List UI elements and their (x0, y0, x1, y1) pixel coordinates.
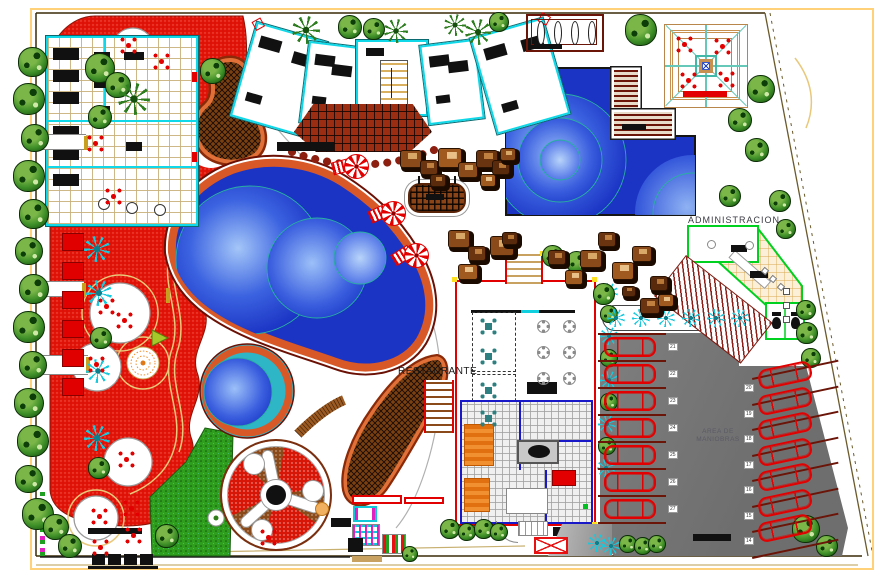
tree-icon (489, 12, 509, 32)
kiosk-bar (404, 497, 444, 504)
bar-flag (454, 176, 456, 184)
pergola-table (676, 36, 693, 53)
cyan-palm-icon (707, 309, 725, 327)
parking-stall-number: 18 (744, 435, 754, 443)
tree-icon (728, 108, 752, 132)
rock-planter (565, 270, 583, 285)
dining-round-table (537, 320, 550, 333)
tree-icon (17, 425, 49, 457)
rock-planter (458, 162, 478, 178)
tree-icon (402, 546, 418, 562)
kiosk-cyan-box (353, 506, 377, 522)
landing-mark (366, 48, 384, 56)
tree-icon (13, 160, 45, 192)
cyan-palm-icon (682, 309, 700, 327)
column-lens (588, 21, 596, 45)
restaurant-west-stairs (424, 380, 454, 433)
patio-table (153, 53, 170, 70)
changing-rooms-building (46, 36, 198, 226)
rock-planter (430, 174, 446, 187)
parking-stall-line (598, 333, 666, 335)
column-lens (571, 21, 579, 45)
toilet-fixture (772, 312, 781, 316)
rock-planter (500, 148, 516, 161)
patio-table (116, 312, 133, 329)
bed-fixture (448, 60, 469, 73)
palm-tree-icon (292, 16, 320, 44)
tree-icon (14, 388, 44, 418)
rock-planter (400, 150, 422, 168)
dining-table (480, 318, 497, 335)
rock-planter (580, 250, 602, 268)
palm-tree-icon (118, 83, 150, 115)
tree-icon (200, 58, 226, 84)
entry-seat (124, 554, 137, 565)
bench-mark (534, 44, 562, 49)
cyan-palm-icon (84, 425, 110, 451)
parked-car (604, 472, 656, 492)
patio-table (123, 500, 140, 517)
bed-fixture (258, 35, 282, 53)
tree-icon (155, 524, 179, 548)
sunbed (62, 320, 84, 338)
palapa-planter (302, 480, 324, 502)
palm-tree-icon (384, 19, 408, 43)
tree-icon (58, 534, 82, 558)
parked-car (604, 337, 656, 357)
pool-umbrella-icon (344, 154, 369, 179)
rock-planter (468, 246, 486, 261)
entry-seat (140, 554, 153, 565)
admin-chair (707, 240, 716, 249)
bed-fixture (483, 43, 507, 61)
admin-cabinet (783, 302, 790, 309)
tree-icon (19, 274, 49, 304)
palm-tree-icon (465, 19, 491, 45)
tree-icon (440, 519, 460, 539)
gate-sign (534, 537, 568, 554)
entrance-steps (518, 521, 548, 536)
rock-planter (492, 160, 510, 175)
parked-car (604, 418, 656, 438)
sunbed (62, 262, 84, 280)
stop-bar (693, 534, 731, 541)
kiosk-bar (352, 495, 402, 504)
toilet-fixture (154, 204, 166, 216)
parking-stall-number: 20 (744, 384, 754, 392)
parking-stall-number: 22 (668, 370, 678, 378)
admin-cabinet (783, 288, 790, 295)
tree-icon (88, 105, 112, 129)
cad-snap-dot (592, 277, 597, 282)
administration-label: ADMINISTRACION (688, 215, 780, 225)
cad-snap-dot (452, 277, 457, 282)
tree-icon (21, 124, 49, 152)
tree-icon (18, 47, 48, 77)
cyan-palm-icon (84, 236, 110, 262)
rock-planter (598, 232, 616, 247)
patio-table (125, 527, 142, 544)
site-plan-canvas: ADMINISTRACION RESTAURANTE (0, 0, 882, 588)
tree-icon (490, 523, 508, 541)
tree-icon (15, 465, 43, 493)
admin-chair (745, 241, 754, 250)
range-top (528, 445, 550, 458)
tree-icon (15, 237, 43, 265)
rock-planter (448, 230, 470, 248)
bed-fixture (53, 92, 79, 104)
kitchen-counter-orange (464, 424, 494, 466)
bath-fixture (312, 96, 327, 106)
tree-icon (625, 14, 657, 46)
tree-icon (338, 15, 362, 39)
rock-planter (632, 246, 652, 262)
pergola-table (714, 38, 731, 55)
parking-stall-number: 14 (744, 537, 754, 545)
sunbed (62, 233, 84, 251)
sand-circle (315, 502, 329, 516)
bar-flag (418, 176, 420, 184)
dining-round-table (563, 372, 576, 385)
kitchen-island (506, 488, 548, 514)
palapa-center-post (266, 485, 286, 505)
parking-stall-line (598, 495, 666, 497)
dining-round-table (563, 346, 576, 359)
kitchen-range (517, 440, 559, 464)
tree-icon (776, 219, 796, 239)
kitchen-counter-orange (464, 478, 490, 512)
patio-table (120, 37, 137, 54)
restaurant-north-stairs (505, 254, 543, 284)
pergola-table (718, 71, 735, 88)
dining-round-table (537, 372, 550, 385)
tree-icon (88, 457, 110, 479)
patio-table (98, 298, 115, 315)
parked-car (604, 391, 656, 411)
patio-table (87, 135, 104, 152)
bed-fixture (429, 54, 450, 67)
pergola-center-planter (695, 55, 717, 77)
pool-umbrella-icon (404, 243, 429, 268)
rock-planter (502, 232, 518, 245)
tree-icon (13, 83, 45, 115)
parking-stall-number: 19 (744, 410, 754, 418)
bed-fixture (53, 48, 79, 60)
parking-stall-number: 21 (668, 343, 678, 351)
bed-fixture (331, 64, 352, 77)
pergola-table (680, 72, 697, 89)
parking-stall-line (598, 387, 666, 389)
terrace-bench (277, 142, 334, 151)
sunbed (62, 291, 84, 309)
stairs-direction-arrow (391, 68, 397, 98)
parking-stall-line (598, 468, 666, 470)
bench-mark (331, 518, 351, 527)
pool-umbrella-icon (381, 201, 406, 226)
deck-bench (622, 124, 646, 130)
rock-planter (622, 286, 636, 297)
entry-seat (108, 554, 121, 565)
rock-planter (480, 174, 496, 187)
bath-fixture (436, 94, 451, 104)
restaurant-label: RESTAURANTE (398, 366, 477, 377)
cyan-palm-icon (731, 309, 749, 327)
tree-icon (648, 535, 666, 553)
bar-counter-mark (426, 194, 444, 200)
tree-icon (745, 138, 769, 162)
parking-stall-number: 27 (668, 505, 678, 513)
parking-stall-number: 15 (744, 512, 754, 520)
tree-icon (363, 18, 385, 40)
palapa-planter (243, 453, 265, 475)
parking-stall-line (598, 441, 666, 443)
rock-planter (658, 294, 674, 307)
admin-cabinet (783, 316, 790, 323)
patio-table (88, 356, 105, 373)
dining-table (480, 410, 497, 427)
counter-fixture (126, 142, 142, 151)
parking-stall-line (598, 522, 666, 524)
rock-planter (458, 264, 478, 280)
bath-fixture (501, 100, 519, 113)
parking-stall-number: 24 (668, 424, 678, 432)
entry-baseline (88, 566, 158, 569)
cabana-structure (526, 14, 604, 52)
bed-fixture (53, 70, 79, 82)
kiosk-pad (352, 556, 382, 562)
sunbed (62, 349, 84, 367)
toilet-fixture (772, 317, 781, 329)
kitchen-red-unit (552, 470, 576, 486)
bed-fixture (53, 174, 79, 186)
dining-table (480, 348, 497, 365)
pergola-bench (683, 91, 727, 97)
parking-stall-line (598, 414, 666, 416)
tree-icon (796, 322, 818, 344)
cyan-palm-icon (602, 537, 620, 555)
parking-stall-number: 26 (668, 478, 678, 486)
patio-table (91, 508, 108, 525)
bath-fixture (245, 92, 263, 105)
patio-table (118, 451, 135, 468)
patio-table (105, 188, 122, 205)
parking-stall-number: 23 (668, 397, 678, 405)
patio-table (260, 529, 277, 546)
tree-icon (593, 283, 615, 305)
palm-tree-icon (444, 14, 466, 36)
dining-wall-cyan (521, 310, 539, 313)
tree-icon (19, 199, 49, 229)
tree-icon (719, 185, 741, 207)
cyan-palm-icon (607, 309, 625, 327)
column-lens (554, 21, 562, 45)
tree-icon (769, 190, 791, 212)
parked-car (604, 364, 656, 384)
kiosk-block (348, 538, 363, 552)
parking-stall-line (598, 360, 666, 362)
parked-car (604, 445, 656, 465)
planter-core (702, 62, 710, 70)
door-mark (192, 72, 197, 82)
rock-planter (612, 262, 634, 280)
dining-round-table (537, 346, 550, 359)
restaurant-building (455, 280, 596, 526)
rock-planter (640, 298, 660, 314)
parking-stall-number: 16 (744, 486, 754, 494)
toilet-fixture (126, 202, 138, 214)
tree-icon (19, 351, 47, 379)
status-dot-green (583, 504, 588, 509)
tree-icon (13, 311, 45, 343)
partition-wall (48, 120, 196, 122)
parked-car (604, 499, 656, 519)
partition-wall (48, 166, 196, 168)
tree-icon (90, 327, 112, 349)
patio-table (92, 539, 109, 556)
lamp-post (166, 288, 170, 303)
dining-round-table (563, 320, 576, 333)
tree-icon (747, 75, 775, 103)
rock-planter (420, 160, 438, 175)
parking-stall-number: 25 (668, 451, 678, 459)
sunbed (62, 378, 84, 396)
rock-planter (650, 276, 668, 291)
door-mark (192, 152, 197, 162)
tree-icon (796, 300, 816, 320)
dining-table (480, 382, 497, 399)
column-lens (537, 21, 545, 45)
parking-stall-number: 17 (744, 461, 754, 469)
rock-planter (548, 250, 566, 265)
